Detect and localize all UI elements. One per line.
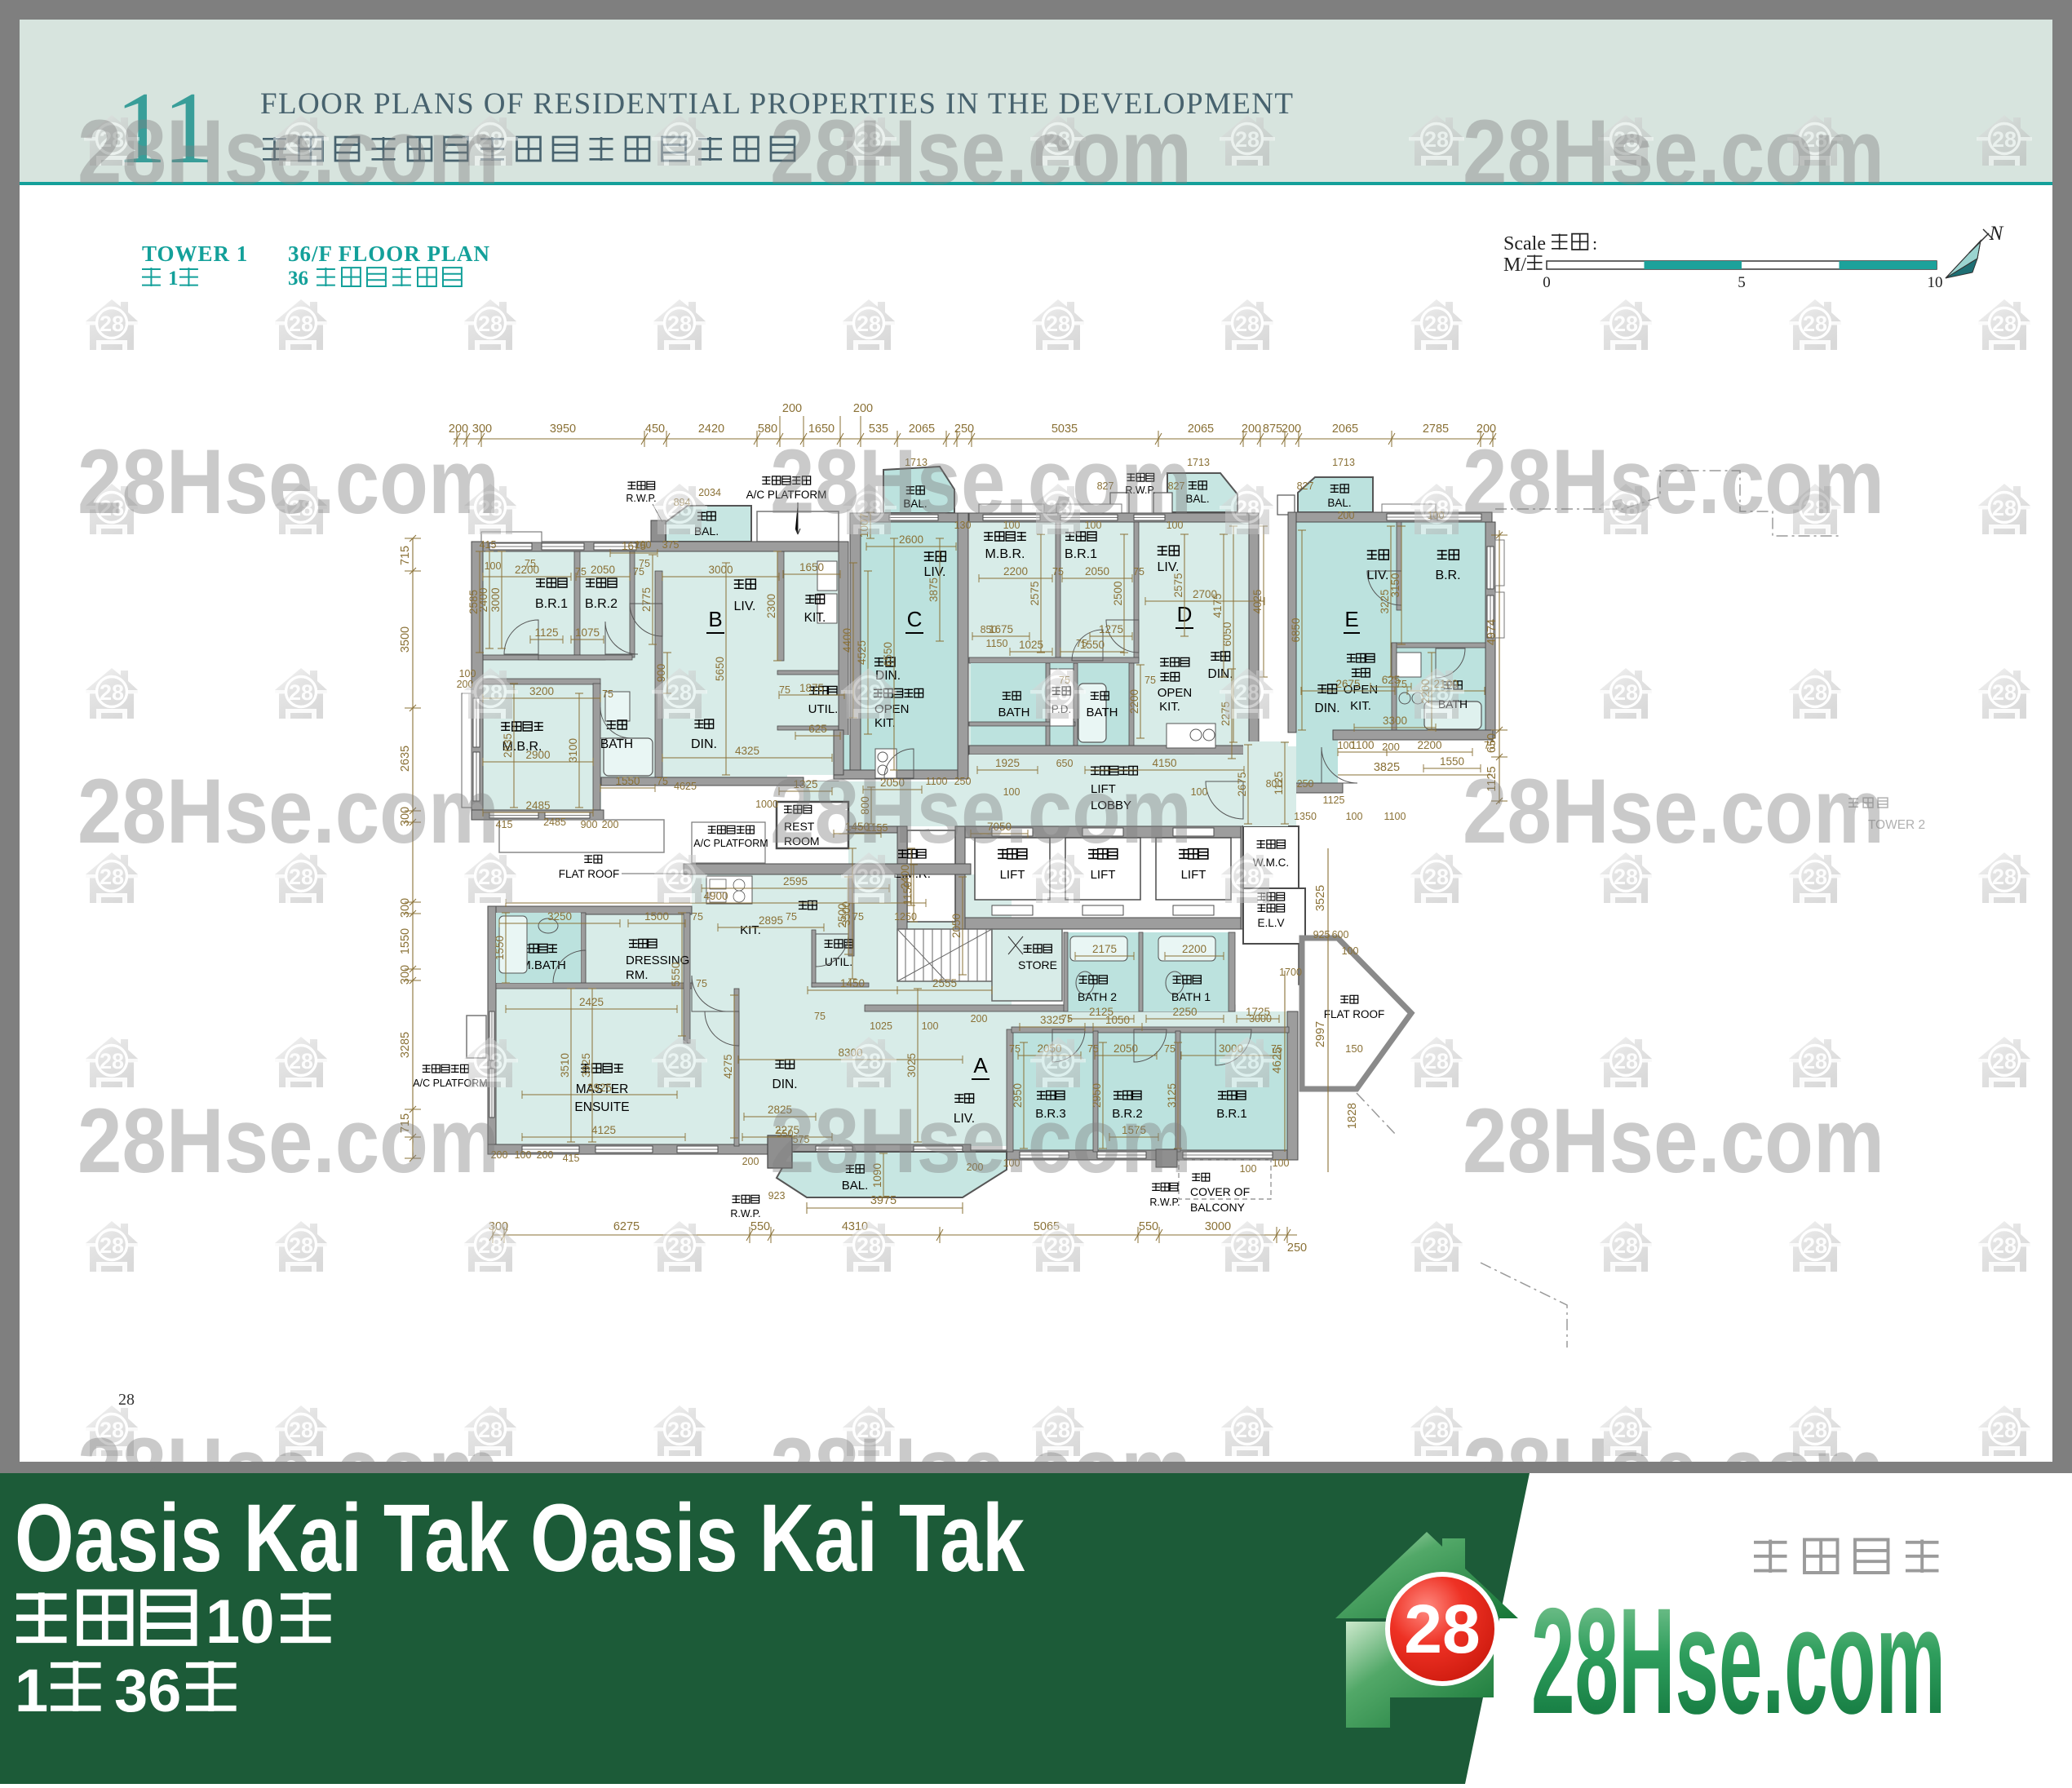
svg-text:LIFT: LIFT — [1091, 868, 1116, 882]
svg-text:75: 75 — [639, 558, 650, 569]
svg-text:2635: 2635 — [502, 733, 514, 758]
svg-text:100: 100 — [1346, 811, 1363, 822]
svg-text:2200: 2200 — [1182, 943, 1206, 955]
svg-text:BALCONY: BALCONY — [1190, 1201, 1246, 1214]
svg-text:LIV.: LIV. — [924, 565, 946, 579]
svg-text:3925: 3925 — [587, 1082, 612, 1094]
svg-text:2675: 2675 — [1335, 678, 1360, 690]
svg-text:LIFT: LIFT — [1181, 868, 1206, 882]
svg-text:R.W.P.: R.W.P. — [626, 493, 656, 504]
svg-text:R.W.P.: R.W.P. — [1149, 1197, 1180, 1208]
svg-text:200: 200 — [1282, 423, 1301, 436]
svg-text:2125: 2125 — [1089, 1006, 1113, 1018]
svg-text:B.R.: B.R. — [1435, 569, 1460, 582]
svg-text:C: C — [907, 607, 923, 631]
svg-text:2175: 2175 — [1092, 943, 1117, 955]
svg-text:2034: 2034 — [698, 487, 721, 498]
svg-text:100: 100 — [515, 1149, 532, 1161]
svg-text:DIN.: DIN. — [1315, 701, 1340, 715]
svg-text:2400: 2400 — [899, 865, 911, 889]
svg-text:75: 75 — [1009, 1043, 1021, 1055]
svg-text:2500: 2500 — [1112, 581, 1124, 605]
svg-text:1650: 1650 — [799, 561, 824, 573]
svg-text:3000: 3000 — [708, 564, 733, 576]
svg-text:2895: 2895 — [759, 914, 783, 927]
svg-text:100: 100 — [459, 668, 476, 679]
svg-text:550: 550 — [750, 1220, 770, 1233]
svg-text:6275: 6275 — [613, 1220, 640, 1233]
svg-text:415: 415 — [480, 539, 497, 551]
svg-text:2500: 2500 — [836, 903, 848, 927]
svg-text:2575: 2575 — [1172, 573, 1184, 597]
svg-text:800: 800 — [1266, 778, 1283, 790]
svg-text:28: 28 — [118, 1391, 135, 1409]
svg-text:28Hse.com: 28Hse.com — [77, 431, 499, 533]
svg-text:75: 75 — [657, 776, 668, 787]
svg-text:3000: 3000 — [1249, 1013, 1272, 1025]
svg-text:1125: 1125 — [534, 626, 558, 639]
svg-text:827: 827 — [1297, 480, 1314, 492]
svg-text:250: 250 — [1287, 1241, 1307, 1255]
svg-text:3100: 3100 — [567, 738, 579, 763]
svg-text:28Hse.com: 28Hse.com — [770, 431, 1192, 533]
svg-text:OPEN: OPEN — [1158, 686, 1193, 700]
svg-text:75: 75 — [852, 911, 864, 923]
svg-text:2420: 2420 — [698, 423, 724, 436]
svg-text:1075: 1075 — [575, 626, 600, 639]
svg-text:28Hse.com: 28Hse.com — [77, 1090, 499, 1192]
svg-text:2300: 2300 — [765, 594, 777, 618]
svg-text:250: 250 — [1297, 778, 1314, 790]
svg-text:2200: 2200 — [1128, 689, 1140, 714]
svg-text:BATH: BATH — [998, 706, 1030, 719]
svg-text:2595: 2595 — [783, 875, 808, 887]
svg-text:E.L.V: E.L.V — [1257, 917, 1284, 929]
svg-text:75: 75 — [814, 1011, 826, 1022]
svg-text:2775: 2775 — [640, 587, 653, 612]
svg-text:1550: 1550 — [399, 928, 412, 954]
svg-text:75: 75 — [1164, 1043, 1175, 1055]
svg-text:4900: 4900 — [703, 890, 728, 902]
svg-text:2900: 2900 — [525, 749, 550, 761]
svg-text:4025: 4025 — [1251, 589, 1264, 613]
svg-text:5: 5 — [1738, 274, 1746, 291]
svg-text:2585: 2585 — [467, 590, 480, 614]
svg-text:COVER OF: COVER OF — [1190, 1185, 1250, 1198]
svg-text:100: 100 — [1338, 740, 1355, 751]
svg-text:3875: 3875 — [928, 578, 940, 602]
svg-text:3025: 3025 — [905, 1053, 918, 1078]
svg-text:75: 75 — [1271, 1043, 1282, 1055]
svg-text:3525: 3525 — [1314, 885, 1327, 911]
svg-text:28Hse.com: 28Hse.com — [770, 101, 1192, 203]
svg-text:3250: 3250 — [547, 910, 572, 923]
svg-text:LIV.: LIV. — [734, 600, 756, 613]
svg-text:4400: 4400 — [841, 628, 853, 653]
svg-text:2485: 2485 — [543, 817, 566, 828]
svg-text:A/C PLATFORM: A/C PLATFORM — [693, 838, 768, 849]
svg-text:75: 75 — [1061, 1013, 1073, 1025]
svg-text:2600: 2600 — [899, 533, 923, 546]
svg-text:100: 100 — [922, 1020, 939, 1032]
svg-text:M/: M/ — [1503, 254, 1526, 276]
svg-text:200: 200 — [537, 1149, 554, 1161]
svg-text:BATH 1: BATH 1 — [1171, 990, 1211, 1003]
svg-text:2425: 2425 — [579, 996, 604, 1008]
svg-text:2555: 2555 — [932, 977, 957, 989]
svg-text:6850: 6850 — [1290, 617, 1302, 642]
svg-text:1550: 1550 — [615, 775, 640, 787]
svg-text:KIT.: KIT. — [1350, 699, 1371, 713]
svg-text:KIT.: KIT. — [804, 611, 826, 625]
svg-text:3510: 3510 — [559, 1053, 571, 1078]
svg-text:75: 75 — [1087, 1043, 1099, 1055]
svg-text:2050: 2050 — [1113, 1042, 1138, 1055]
svg-text:923: 923 — [768, 1190, 786, 1202]
svg-text:200: 200 — [742, 1156, 759, 1167]
svg-text::: : — [1592, 233, 1597, 254]
svg-text:3285: 3285 — [399, 1032, 412, 1058]
svg-text:200: 200 — [853, 402, 873, 415]
svg-text:3300: 3300 — [1383, 715, 1407, 727]
svg-text:75: 75 — [786, 911, 797, 923]
svg-text:100: 100 — [635, 539, 652, 551]
svg-text:2050: 2050 — [591, 564, 615, 576]
svg-text:2575: 2575 — [1029, 581, 1041, 605]
svg-text:FLAT ROOF: FLAT ROOF — [559, 868, 620, 880]
svg-text:28Hse.com: 28Hse.com — [1531, 1578, 1946, 1746]
svg-text:DIN.: DIN. — [691, 737, 717, 751]
svg-text:2065: 2065 — [1332, 423, 1358, 436]
svg-text:200: 200 — [602, 819, 619, 830]
svg-text:75: 75 — [1484, 740, 1495, 751]
svg-text:28Hse.com: 28Hse.com — [770, 1090, 1192, 1192]
svg-text:200: 200 — [1338, 510, 1355, 521]
svg-text:DIN.: DIN. — [1208, 667, 1233, 681]
svg-text:1350: 1350 — [1294, 811, 1317, 822]
svg-text:1250: 1250 — [894, 911, 917, 923]
svg-text:Oasis Kai Tak Oasis Kai Tak: Oasis Kai Tak Oasis Kai Tak — [15, 1485, 1025, 1592]
svg-text:1100: 1100 — [1384, 811, 1406, 822]
svg-text:3500: 3500 — [399, 626, 412, 653]
svg-text:LIV.: LIV. — [1158, 560, 1180, 574]
svg-text:28: 28 — [1404, 1591, 1480, 1667]
svg-text:28Hse.com: 28Hse.com — [1463, 431, 1884, 533]
svg-text:850: 850 — [981, 624, 998, 635]
svg-text:5550: 5550 — [670, 962, 682, 986]
svg-text:10: 10 — [206, 1587, 275, 1657]
svg-text:75: 75 — [696, 978, 707, 989]
svg-text:1: 1 — [15, 1657, 48, 1724]
svg-text:75: 75 — [779, 684, 790, 696]
svg-text:100: 100 — [1240, 1163, 1257, 1175]
svg-text:4974: 4974 — [1485, 619, 1499, 645]
svg-text:RM.: RM. — [626, 968, 649, 982]
svg-text:10: 10 — [1928, 274, 1943, 291]
svg-text:B.R.2: B.R.2 — [585, 597, 618, 611]
svg-text:300: 300 — [399, 965, 412, 985]
svg-text:2200: 2200 — [1003, 565, 1028, 578]
svg-text:2250: 2250 — [1172, 1006, 1197, 1018]
svg-text:100: 100 — [485, 560, 502, 572]
svg-text:1500: 1500 — [644, 910, 669, 923]
svg-text:2050: 2050 — [950, 914, 963, 938]
svg-text:0: 0 — [1543, 274, 1551, 291]
svg-text:3000: 3000 — [1205, 1220, 1231, 1233]
svg-text:3825: 3825 — [1374, 761, 1400, 774]
svg-text:900: 900 — [655, 664, 667, 683]
svg-text:R.W.P.: R.W.P. — [730, 1208, 760, 1219]
svg-text:KIT.: KIT. — [1159, 700, 1180, 714]
svg-text:STORE: STORE — [1018, 958, 1057, 971]
svg-text:1025: 1025 — [870, 1020, 892, 1032]
svg-text:75: 75 — [525, 558, 536, 569]
svg-text:2050: 2050 — [1085, 565, 1109, 578]
svg-text:75: 75 — [1133, 566, 1144, 578]
svg-text:FLAT ROOF: FLAT ROOF — [1324, 1008, 1385, 1020]
svg-text:625: 625 — [808, 723, 827, 735]
svg-text:75: 75 — [1396, 679, 1407, 690]
svg-text:6550: 6550 — [882, 642, 894, 666]
svg-text:BATH: BATH — [600, 737, 633, 751]
svg-text:3200: 3200 — [529, 685, 554, 697]
svg-text:B.R.1: B.R.1 — [1216, 1107, 1247, 1121]
svg-text:1025: 1025 — [1019, 639, 1043, 651]
svg-text:B.R.1: B.R.1 — [1065, 547, 1097, 561]
svg-text:28Hse.com: 28Hse.com — [1463, 760, 1884, 862]
svg-text:300: 300 — [399, 898, 412, 918]
svg-text:28Hse.com: 28Hse.com — [77, 760, 499, 862]
svg-text:1550: 1550 — [1440, 755, 1464, 768]
svg-text:36: 36 — [114, 1657, 181, 1724]
svg-text:36: 36 — [288, 268, 308, 290]
svg-text:3925: 3925 — [580, 1053, 592, 1078]
svg-text:2675: 2675 — [1236, 772, 1248, 796]
svg-text:ENSUITE: ENSUITE — [574, 1100, 629, 1114]
svg-text:2785: 2785 — [1423, 423, 1449, 436]
svg-text:2997: 2997 — [1314, 1021, 1327, 1047]
svg-text:5650: 5650 — [714, 657, 726, 681]
svg-text:550: 550 — [1139, 1220, 1158, 1233]
svg-text:A: A — [973, 1053, 988, 1078]
svg-text:BATH: BATH — [1087, 706, 1118, 719]
svg-text:900: 900 — [581, 819, 598, 830]
svg-text:28Hse.com: 28Hse.com — [770, 760, 1192, 862]
svg-text:75: 75 — [575, 566, 587, 578]
svg-text:B.R.1: B.R.1 — [535, 597, 568, 611]
svg-text:4175: 4175 — [1211, 593, 1224, 617]
svg-text:Scale: Scale — [1503, 233, 1546, 254]
svg-text:100: 100 — [1342, 945, 1359, 957]
svg-text:1: 1 — [168, 268, 179, 290]
svg-text:28Hse.com: 28Hse.com — [1463, 1090, 1884, 1192]
svg-text:600: 600 — [1332, 929, 1349, 940]
svg-text:6050: 6050 — [1221, 622, 1233, 646]
svg-text:375: 375 — [662, 539, 680, 551]
svg-text:75: 75 — [602, 688, 613, 700]
svg-text:1550: 1550 — [494, 936, 506, 960]
svg-text:28Hse.com: 28Hse.com — [1463, 101, 1884, 203]
svg-text:415: 415 — [563, 1153, 580, 1164]
svg-text:1275: 1275 — [1099, 623, 1123, 635]
svg-text:200: 200 — [971, 1013, 988, 1025]
svg-text:3950: 3950 — [550, 423, 576, 436]
svg-text:1713: 1713 — [1332, 457, 1355, 468]
svg-text:100: 100 — [1191, 786, 1208, 798]
svg-text:150: 150 — [1345, 1042, 1363, 1055]
svg-text:3000: 3000 — [489, 587, 502, 612]
svg-text:N: N — [1989, 223, 2004, 245]
svg-text:2200: 2200 — [1417, 739, 1441, 751]
svg-text:BAL.: BAL. — [1327, 497, 1351, 509]
svg-text:75: 75 — [1076, 638, 1087, 649]
svg-text:875: 875 — [1263, 423, 1282, 436]
svg-text:M.B.R.: M.B.R. — [985, 547, 1025, 561]
svg-text:100: 100 — [1273, 1157, 1290, 1169]
svg-text:4275: 4275 — [722, 1054, 734, 1078]
svg-text:75: 75 — [1144, 675, 1156, 686]
svg-text:28Hse.com: 28Hse.com — [77, 101, 499, 203]
svg-text:36/F FLOOR PLAN: 36/F FLOOR PLAN — [288, 241, 490, 266]
svg-text:UTIL.: UTIL. — [808, 702, 839, 716]
svg-text:715: 715 — [399, 546, 412, 565]
svg-text:E: E — [1344, 607, 1358, 631]
svg-text:450: 450 — [645, 423, 665, 436]
svg-text:200: 200 — [1382, 741, 1400, 753]
svg-text:TOWER 1: TOWER 1 — [142, 241, 248, 266]
svg-text:4525: 4525 — [856, 640, 868, 665]
svg-text:3150: 3150 — [1389, 573, 1401, 597]
svg-text:1150: 1150 — [986, 638, 1008, 649]
svg-text:75: 75 — [692, 911, 703, 923]
svg-text:1875: 1875 — [799, 682, 824, 694]
svg-text:M.BATH: M.BATH — [520, 958, 566, 972]
svg-text:4325: 4325 — [735, 745, 759, 757]
svg-text:LIFT: LIFT — [1000, 868, 1025, 882]
svg-text:BATH 2: BATH 2 — [1078, 990, 1117, 1003]
svg-text:4125: 4125 — [591, 1124, 616, 1136]
svg-text:4625: 4625 — [674, 781, 697, 792]
svg-text:925: 925 — [1313, 929, 1330, 940]
svg-text:B: B — [708, 607, 722, 631]
svg-text:1828: 1828 — [1346, 1103, 1359, 1129]
svg-text:75: 75 — [1052, 566, 1064, 578]
svg-text:200: 200 — [1242, 423, 1261, 436]
svg-text:1700: 1700 — [1279, 967, 1302, 978]
svg-text:2485: 2485 — [525, 799, 550, 812]
svg-text:1125: 1125 — [1323, 794, 1345, 806]
svg-text:200: 200 — [782, 402, 802, 415]
